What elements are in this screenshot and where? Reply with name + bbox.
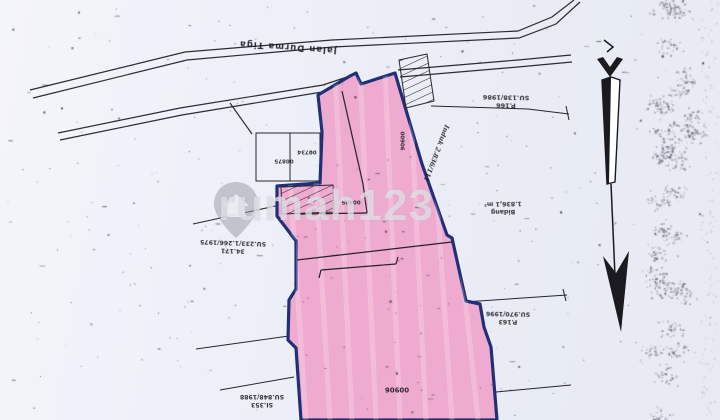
nib-label-00906-main: 00906 (385, 384, 409, 393)
nib-label-00906-strip: 00906 (397, 131, 404, 150)
parcel-label-bidang: Bidang 1.836,1 m² (484, 199, 522, 216)
road-lines (30, 0, 580, 140)
site-plan-drawing (0, 0, 720, 420)
nib-label-00734: 00734 (297, 147, 316, 154)
parcel-label-34171: 34.171 SU.233/1.266/1975 (200, 237, 267, 255)
nib-label-00875: 00875 (274, 156, 293, 163)
nib-label-00405: 00405 (341, 197, 360, 204)
parcel-label-si353: SI.353 SU.848/1988 (240, 392, 284, 408)
scanned-site-plan: Jalan Durma Tiga P.166 SU.138/1986 34.17… (0, 0, 720, 420)
parcel-label-p163: P.163 SU.970/1996 (486, 309, 531, 326)
parcel-label-p166: P.166 SU.138/1986 (483, 92, 530, 110)
north-arrow-icon (597, 40, 629, 332)
